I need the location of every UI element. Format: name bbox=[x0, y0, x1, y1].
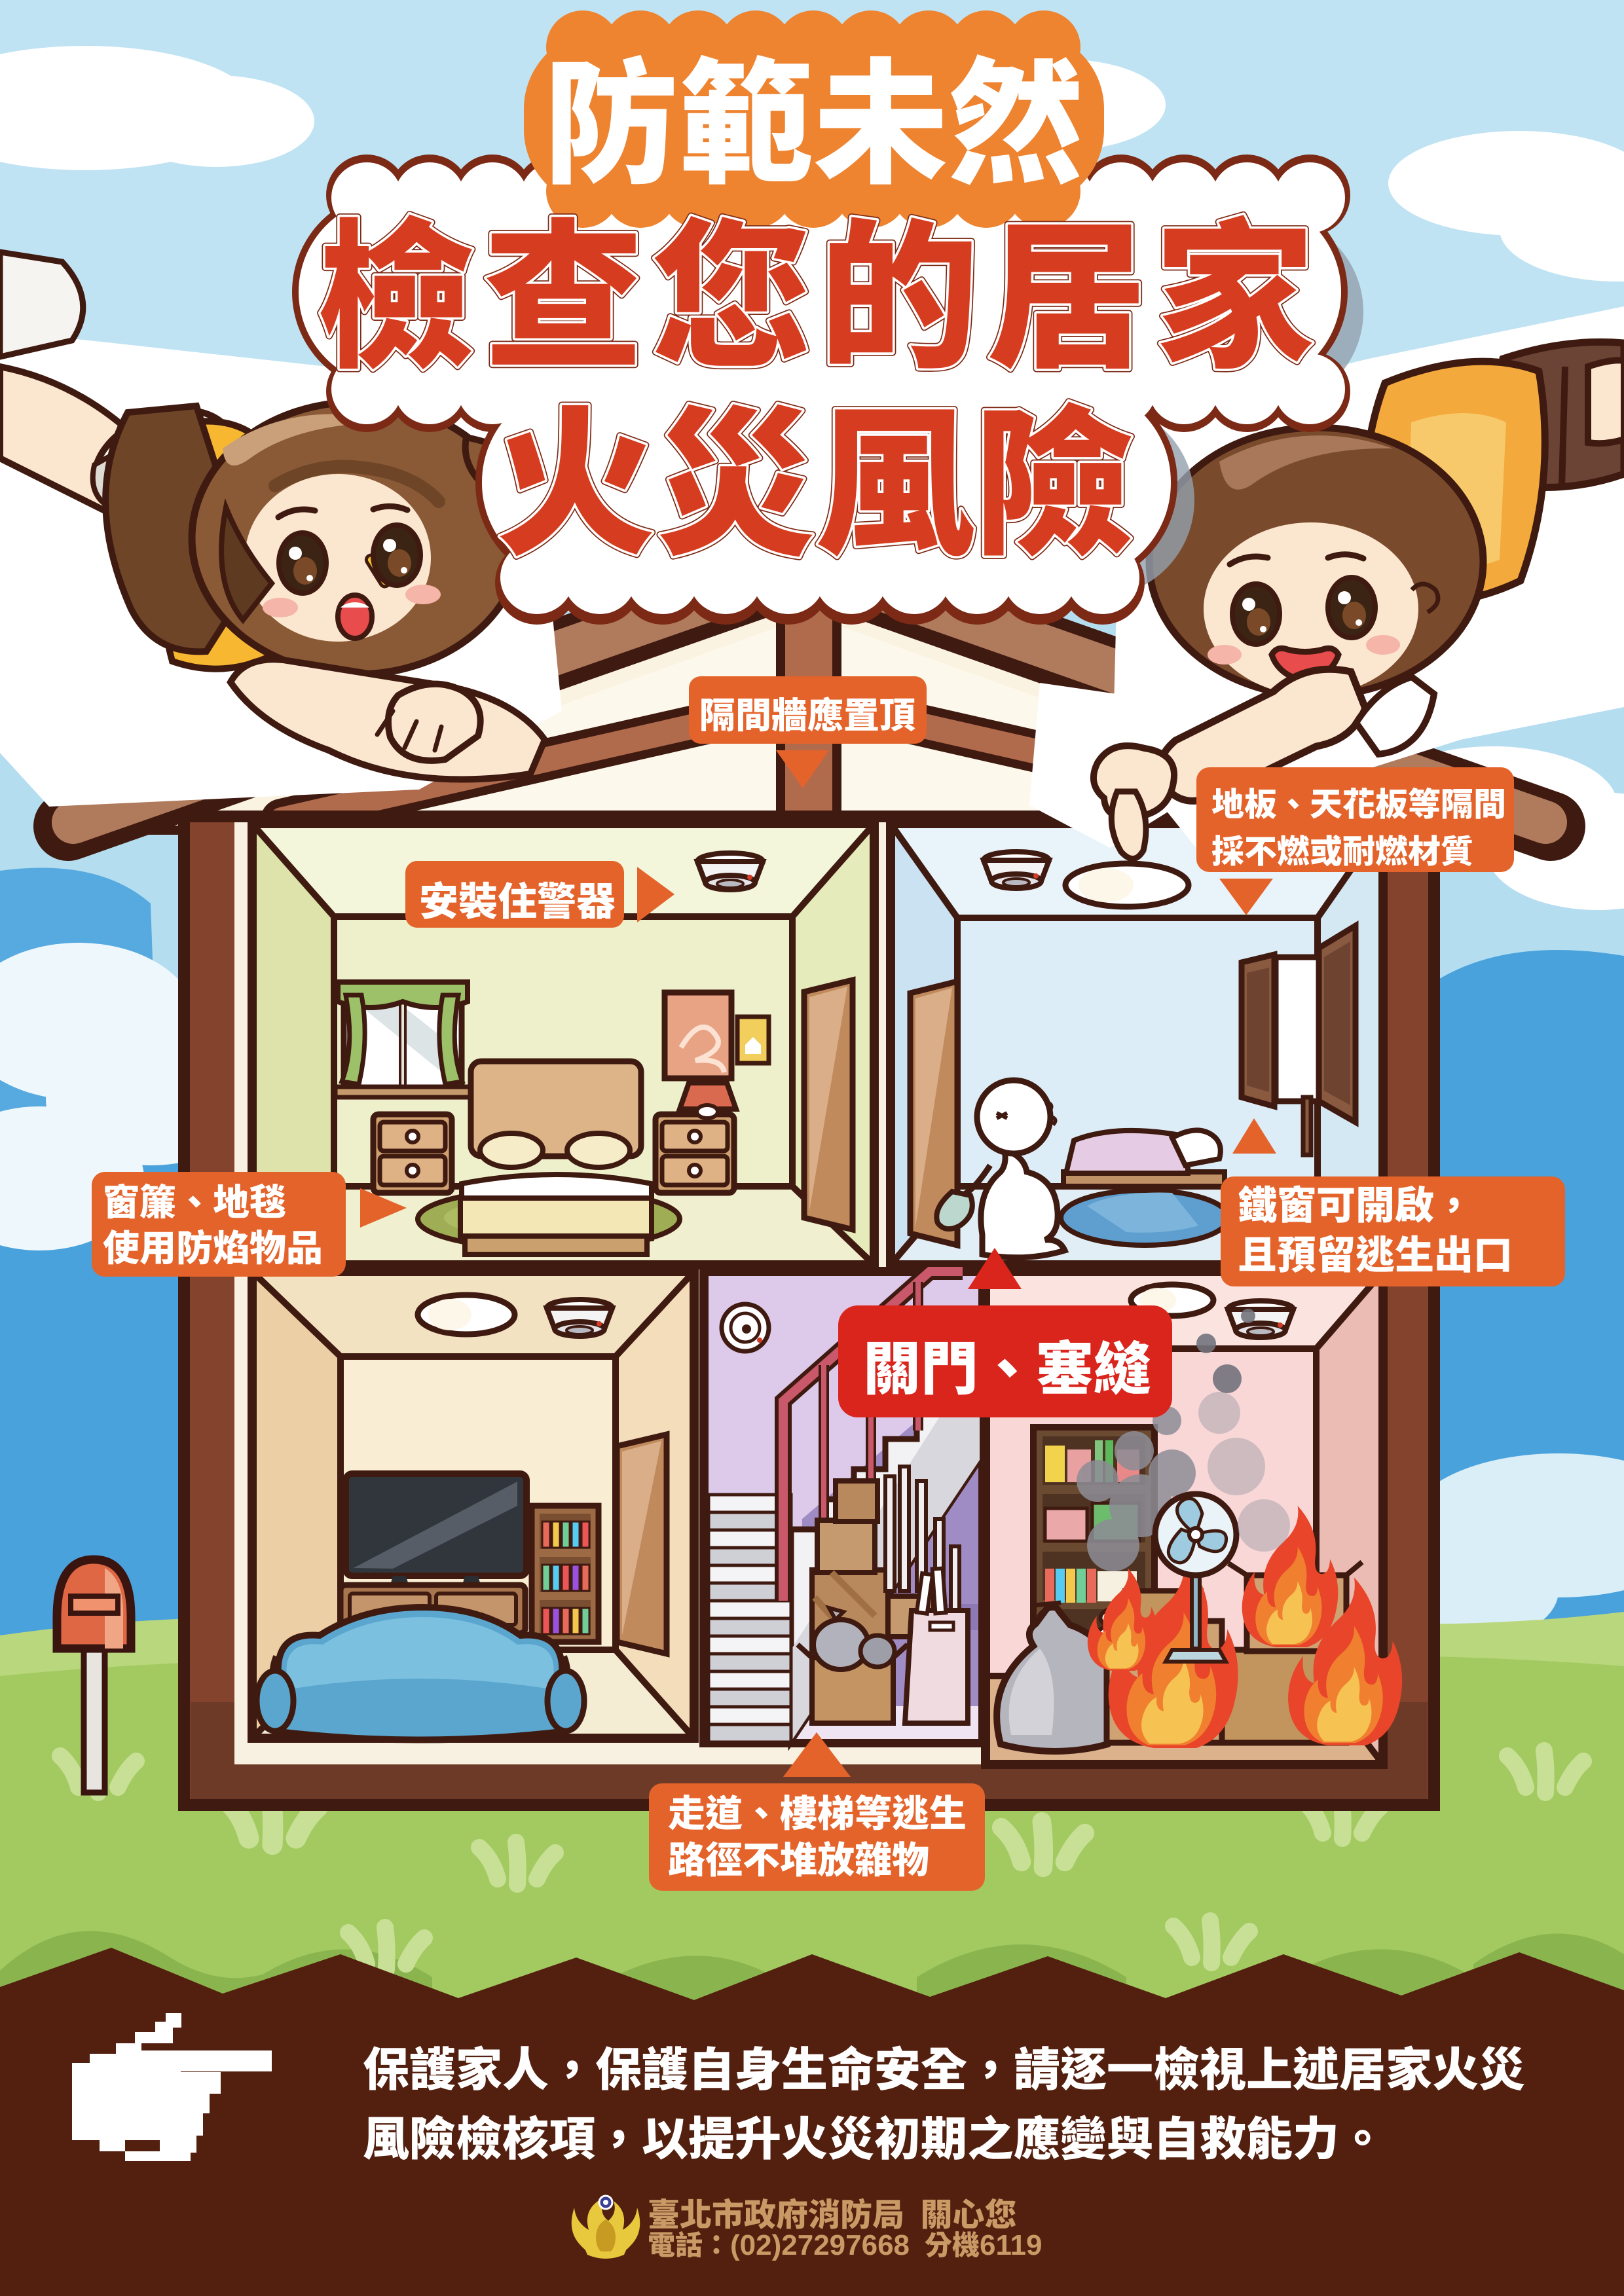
svg-text:(02)27297668: (02)27297668 bbox=[730, 2229, 910, 2261]
svg-text:6119: 6119 bbox=[980, 2229, 1042, 2261]
